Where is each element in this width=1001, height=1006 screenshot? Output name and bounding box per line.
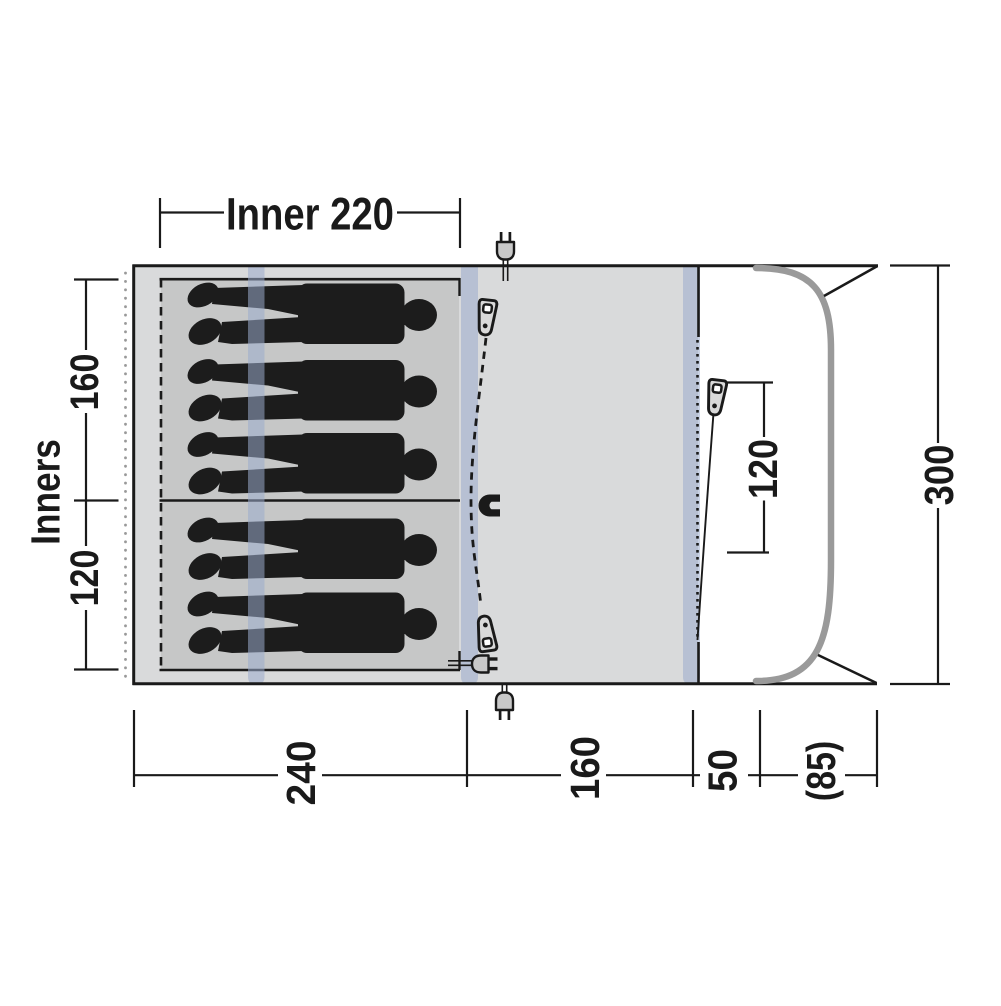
svg-text:240: 240	[279, 741, 324, 806]
svg-text:Inner 220: Inner 220	[226, 189, 394, 240]
svg-text:120: 120	[741, 439, 787, 499]
svg-text:160: 160	[563, 736, 608, 800]
svg-text:50: 50	[700, 749, 745, 792]
svg-text:120: 120	[61, 550, 106, 607]
svg-text:(85): (85)	[798, 741, 844, 801]
svg-text:300: 300	[917, 445, 962, 506]
svg-text:Inners: Inners	[23, 439, 69, 545]
svg-text:160: 160	[61, 354, 106, 411]
